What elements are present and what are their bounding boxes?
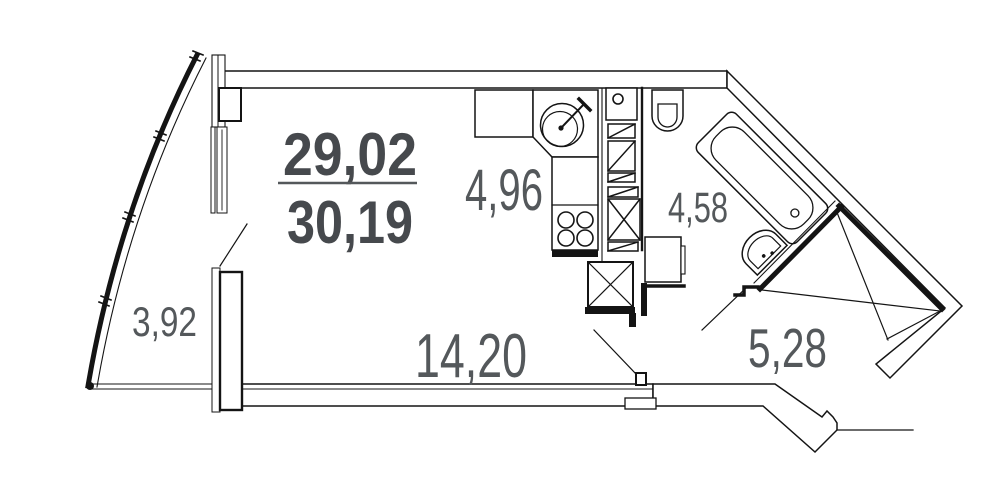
- top-wall: [222, 71, 727, 88]
- washing-machine: [645, 237, 685, 282]
- door-threshold: [625, 398, 656, 409]
- floorplan-canvas: 29,02 30,19 4,96 4,58 3,92 14,20 5,28: [0, 0, 1005, 487]
- duct-boxes: [608, 124, 640, 251]
- living-area-label: 14,20: [415, 322, 527, 391]
- wall-stub-bath-left: [641, 283, 647, 316]
- bathroom-area-label: 4,58: [668, 184, 728, 232]
- wall-stub-vertical: [629, 313, 636, 327]
- kitchen-counter-end-wall: [552, 250, 598, 257]
- washing-machine-body: [645, 237, 681, 282]
- total-area-lower: 30,19: [287, 189, 413, 256]
- balcony-floor-edge: [90, 384, 212, 389]
- balcony-area-label: 3,92: [132, 298, 197, 345]
- floorplan-drawing: 29,02 30,19 4,96 4,58 3,92 14,20 5,28: [0, 0, 1005, 487]
- balcony-door-swing: [220, 224, 247, 266]
- hall-bottom-wall: [653, 384, 837, 452]
- wall-pier-top: [219, 88, 241, 121]
- kitchen-area-label: 4,96: [465, 158, 543, 223]
- kitchen-counter-left: [475, 90, 533, 137]
- total-area-upper: 29,02: [283, 121, 417, 188]
- balcony-window-wall: [211, 55, 247, 412]
- living-door-swing: [594, 330, 637, 375]
- toilet: [652, 90, 683, 131]
- wall-pier-bottom: [220, 272, 242, 410]
- living-door-leaf: [636, 373, 646, 385]
- toilet-outer: [652, 90, 683, 131]
- vent-shaft-column: [602, 88, 642, 262]
- washing-machine-tab: [681, 246, 685, 274]
- bathroom-door-leaf: [702, 288, 746, 330]
- window-strip-outer: [211, 127, 215, 213]
- shaft-top-box: [606, 88, 637, 120]
- wall-stub-below-vent: [585, 307, 635, 314]
- hall-area-label: 5,28: [748, 317, 827, 379]
